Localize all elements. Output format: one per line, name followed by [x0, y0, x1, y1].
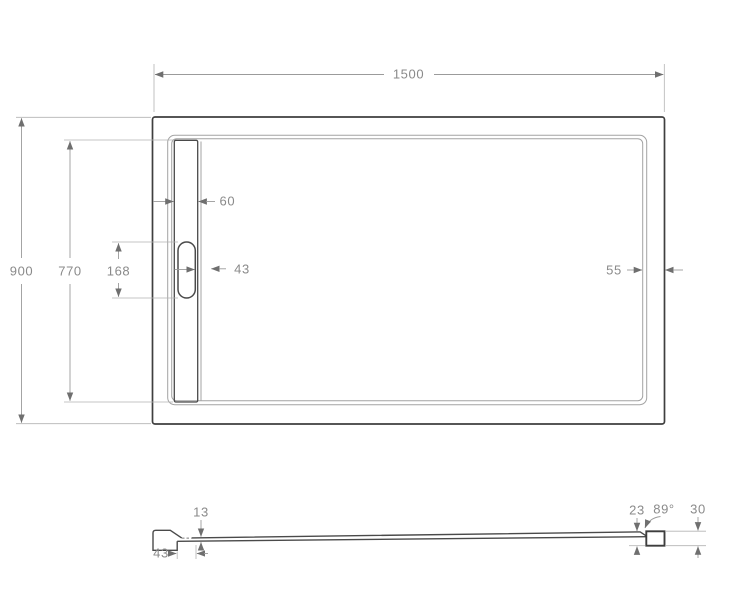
dim-base-thickness: 13	[193, 505, 209, 550]
section-right-rim	[646, 531, 664, 545]
dim-drain-cover-width: 43	[175, 262, 250, 277]
dim-label-43-section: 43	[153, 546, 169, 561]
dim-label-1500: 1500	[393, 67, 424, 82]
dim-label-770: 770	[58, 264, 82, 279]
tray-outer-edge	[153, 117, 665, 424]
dim-overall-width: 1500	[154, 64, 664, 112]
dim-label-60: 60	[220, 194, 236, 209]
dim-label-168: 168	[107, 264, 131, 279]
shower-tray-technical-drawing: 1500 900 770 168 60	[0, 0, 750, 613]
dim-inner-wall-height: 23	[629, 503, 645, 554]
drawing-canvas: 1500 900 770 168 60	[0, 0, 750, 613]
dim-wall-angle: 89°	[645, 502, 675, 529]
dim-label-13: 13	[193, 505, 209, 520]
dim-label-900: 900	[10, 264, 34, 279]
dim-label-30: 30	[690, 502, 706, 517]
plan-view	[153, 117, 665, 424]
dim-label-55: 55	[606, 263, 622, 278]
drain-cover	[178, 242, 195, 298]
dim-drain-zone-width: 43	[153, 545, 208, 561]
dim-label-89deg: 89°	[653, 502, 674, 517]
dim-right-rim-width: 55	[606, 263, 683, 278]
dim-label-23: 23	[629, 503, 645, 518]
section-view	[153, 530, 665, 550]
dim-channel-width: 60	[153, 194, 235, 209]
angle-leader-arc	[645, 517, 661, 529]
dim-label-43-plan: 43	[234, 262, 250, 277]
